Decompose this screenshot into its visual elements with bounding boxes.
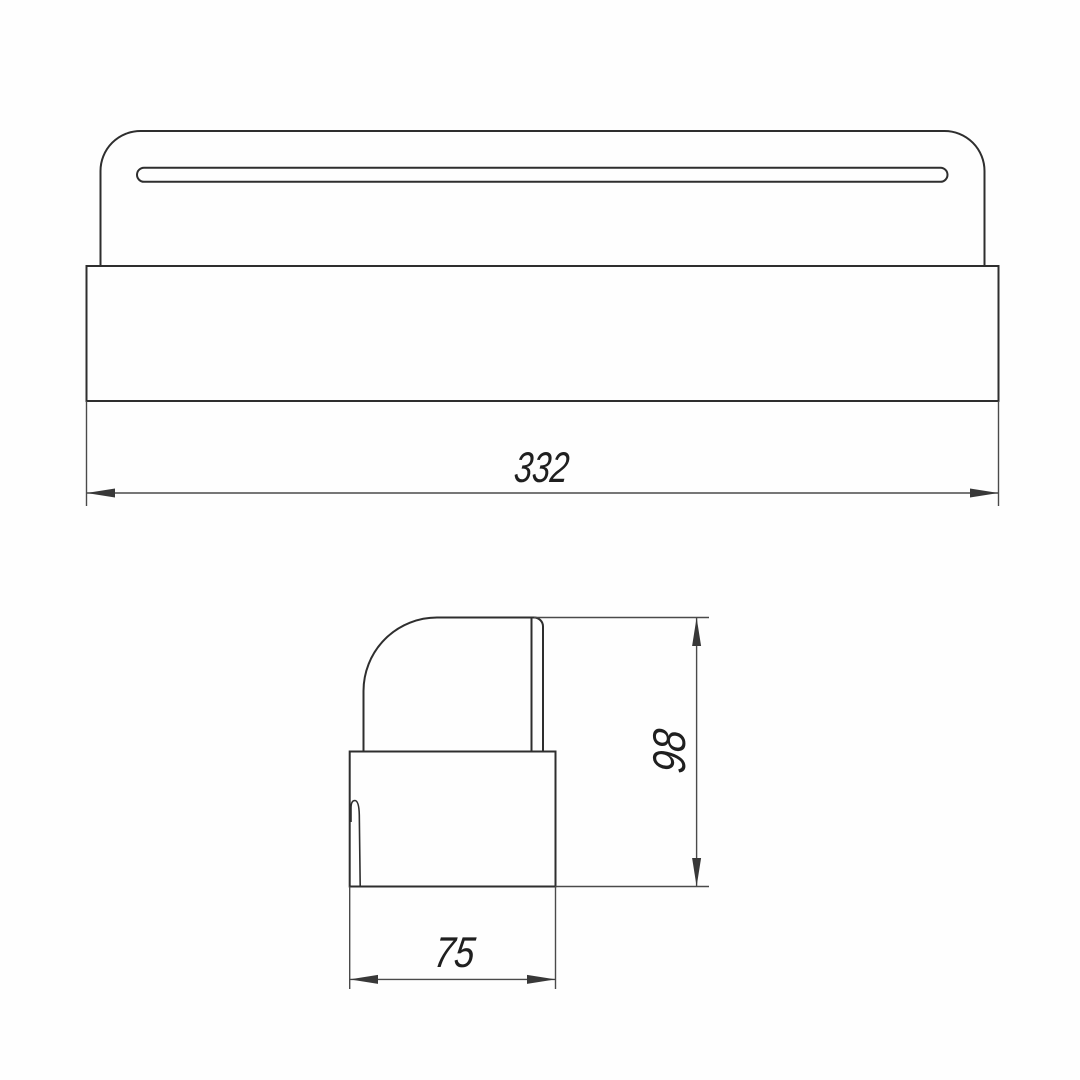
- svg-text:98: 98: [643, 726, 695, 776]
- svg-text:75: 75: [432, 929, 479, 977]
- svg-text:332: 332: [512, 444, 572, 492]
